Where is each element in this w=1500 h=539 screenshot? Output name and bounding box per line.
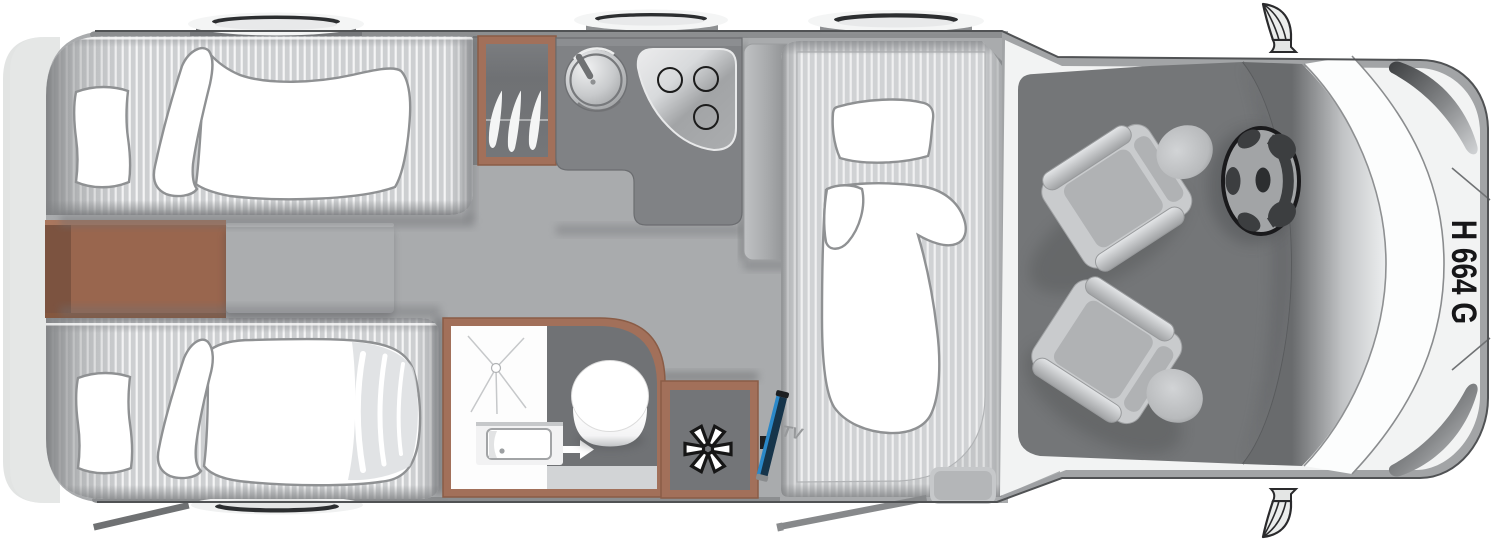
svg-text:H 664 G: H 664 G <box>1444 220 1484 324</box>
